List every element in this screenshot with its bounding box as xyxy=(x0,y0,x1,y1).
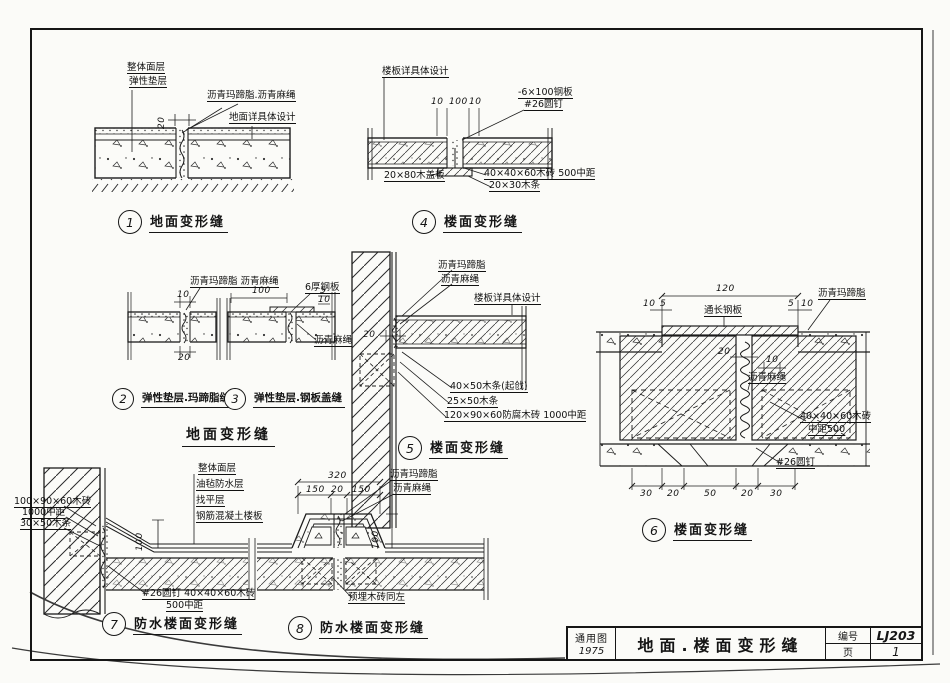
dim-d8-320: 320 xyxy=(328,471,347,482)
caption-detail-2: 2 弹性垫层.玛蹄脂缝 xyxy=(112,388,233,410)
detail-1-number: 1 xyxy=(118,210,142,234)
drawing-type-label: 通用图 xyxy=(575,630,608,645)
label-d4-nail: #26圆钉 xyxy=(524,99,563,111)
dim-d5-20: 20 xyxy=(363,330,375,341)
label-d8-note: 预埋木砖同左 xyxy=(348,592,405,604)
drawing-sheet: 整体面层 弹性垫层 沥青玛蹄脂.沥青麻绳 地面详具体设计 20 1 地面变形缝 … xyxy=(0,0,950,683)
label-d5-mastic: 沥青玛蹄脂 xyxy=(438,260,486,272)
dim-d8-150a: 150 xyxy=(306,485,325,496)
label-d1-surface: 整体面层 xyxy=(127,62,165,74)
label-d1-mastic-rope: 沥青玛蹄脂.沥青麻绳 xyxy=(207,90,296,102)
dim-d7-100: 100 xyxy=(135,532,146,551)
label-d4-strip: 20×30木条 xyxy=(489,180,540,192)
detail-5-title: 楼面变形缝 xyxy=(429,437,508,459)
dim-d23-10: 10 xyxy=(177,290,189,301)
detail-1-title: 地面变形缝 xyxy=(149,211,228,233)
label-d6-plate: 通长钢板 xyxy=(704,305,742,317)
detail-5-number: 5 xyxy=(398,436,422,460)
label-d6-brick: 40×40×60木砖 xyxy=(800,411,871,423)
label-d7-layer2: 油毡防水层 xyxy=(196,479,244,491)
title-block: 通用图 1975 地面.楼面变形缝 编号 页 LJ203 1 xyxy=(566,626,921,659)
title-block-type-cell: 通用图 1975 xyxy=(568,628,616,659)
label-d23-rope: 沥青麻绳 xyxy=(314,335,352,347)
title-block-labels-column: 编号 页 xyxy=(825,628,870,659)
label-d4-steel: -6×100钢板 xyxy=(518,87,573,99)
caption-group-2-3: 地面变形缝 xyxy=(182,424,275,447)
page-label: 页 xyxy=(826,644,870,659)
caption-detail-7: 7 防水楼面变形缝 xyxy=(102,612,242,636)
dim-d4-10b: 10 xyxy=(469,97,481,108)
dim-d6-10-left: 10 xyxy=(643,299,655,310)
detail-2-number: 2 xyxy=(112,388,134,410)
label-d7-layer1: 整体面层 xyxy=(198,463,236,475)
label-d6-rope: 沥青麻绳 xyxy=(748,372,786,384)
drawing-year: 1975 xyxy=(579,646,604,657)
label-d5-slab-design: 楼板详具体设计 xyxy=(474,293,541,305)
label-d4-brick: 40×40×60木砖 500中距 xyxy=(484,168,595,180)
label-d5-rope: 沥青麻绳 xyxy=(441,274,479,286)
dim-d23-10r: 10 xyxy=(318,295,330,306)
dim-d6-10-mid: 10 xyxy=(766,355,778,366)
dim-d4-10a: 10 xyxy=(431,97,443,108)
label-d7-strip-left: 30×50木条 xyxy=(20,518,71,530)
sheet-number-label: 编号 xyxy=(826,628,870,644)
dim-d23-100: 100 xyxy=(252,286,271,297)
label-d4-cover: 20×80木盖板 xyxy=(384,170,445,182)
detail-4-title: 楼面变形缝 xyxy=(443,211,522,233)
label-d4-slab-design: 楼板详具体设计 xyxy=(382,66,449,78)
label-d5-brick: 120×90×60防腐木砖 1000中距 xyxy=(444,410,586,422)
detail-6-number: 6 xyxy=(642,518,666,542)
dim-d8-20: 20 xyxy=(331,485,343,496)
label-d7-nail-brick: #26圆钉 40×40×60木砖 xyxy=(142,588,255,600)
label-d23-steel-plate: 6厚钢板 xyxy=(305,282,340,294)
dim-d8-150b: 150 xyxy=(352,485,371,496)
detail-6-title: 楼面变形缝 xyxy=(673,519,752,541)
dim-d23-20: 20 xyxy=(178,353,190,364)
detail-3-number: 3 xyxy=(224,388,246,410)
dim-d8-100: 100 xyxy=(371,530,382,549)
caption-detail-5: 5 楼面变形缝 xyxy=(398,436,508,460)
caption-detail-4: 4 楼面变形缝 xyxy=(412,210,522,234)
dim-d6-5-right: 5 xyxy=(788,299,794,310)
dim-d4-100: 100 xyxy=(449,97,468,108)
dim-d6-b30a: 30 xyxy=(640,489,652,500)
label-d8-mastic: 沥青玛蹄脂 xyxy=(390,469,438,481)
sheet-title: 地面.楼面变形缝 xyxy=(616,628,825,659)
dim-d6-5-left: 5 xyxy=(660,299,666,310)
dim-d6-10-right: 10 xyxy=(801,299,813,310)
dim-d6-120: 120 xyxy=(716,284,735,295)
detail-3-title: 弹性垫层.钢板盖缝 xyxy=(253,390,345,408)
dim-d6-b30b: 30 xyxy=(770,489,782,500)
detail-7-number: 7 xyxy=(102,612,126,636)
label-d6-spacing: 中距500 xyxy=(808,424,845,436)
caption-detail-1: 1 地面变形缝 xyxy=(118,210,228,234)
detail-2-title: 弹性垫层.玛蹄脂缝 xyxy=(141,390,233,408)
dim-d6-b50: 50 xyxy=(704,489,716,500)
label-d7-layer3: 找平层 xyxy=(196,495,225,507)
detail-7-title: 防水楼面变形缝 xyxy=(133,613,242,635)
label-d6-mastic: 沥青玛蹄脂 xyxy=(818,288,866,300)
label-d5-strip1: 40×50木条(起戗) xyxy=(450,381,528,393)
label-d7-spacing: 500中距 xyxy=(166,600,203,612)
sheet-number: LJ203 xyxy=(871,628,921,644)
detail-8-number: 8 xyxy=(288,616,312,640)
dim-d6-b20b: 20 xyxy=(741,489,753,500)
caption-detail-3: 3 弹性垫层.钢板盖缝 xyxy=(224,388,345,410)
detail-4-number: 4 xyxy=(412,210,436,234)
label-d6-nail: #26圆钉 xyxy=(776,457,815,469)
page-number: 1 xyxy=(871,644,921,659)
dim-d1-20: 20 xyxy=(157,117,168,129)
label-d1-design: 地面详具体设计 xyxy=(229,112,296,124)
label-d1-cushion: 弹性垫层 xyxy=(129,76,167,88)
dim-d6-b20a: 20 xyxy=(667,489,679,500)
title-block-values-column: LJ203 1 xyxy=(870,628,921,659)
dim-d6-20: 20 xyxy=(718,347,730,358)
label-d5-strip2: 25×50木条 xyxy=(447,396,498,408)
label-d8-rope: 沥青麻绳 xyxy=(393,483,431,495)
caption-detail-8: 8 防水楼面变形缝 xyxy=(288,616,428,640)
label-d7-layer4: 钢筋混凝土楼板 xyxy=(196,511,263,523)
caption-detail-6: 6 楼面变形缝 xyxy=(642,518,752,542)
detail-8-title: 防水楼面变形缝 xyxy=(319,617,428,639)
